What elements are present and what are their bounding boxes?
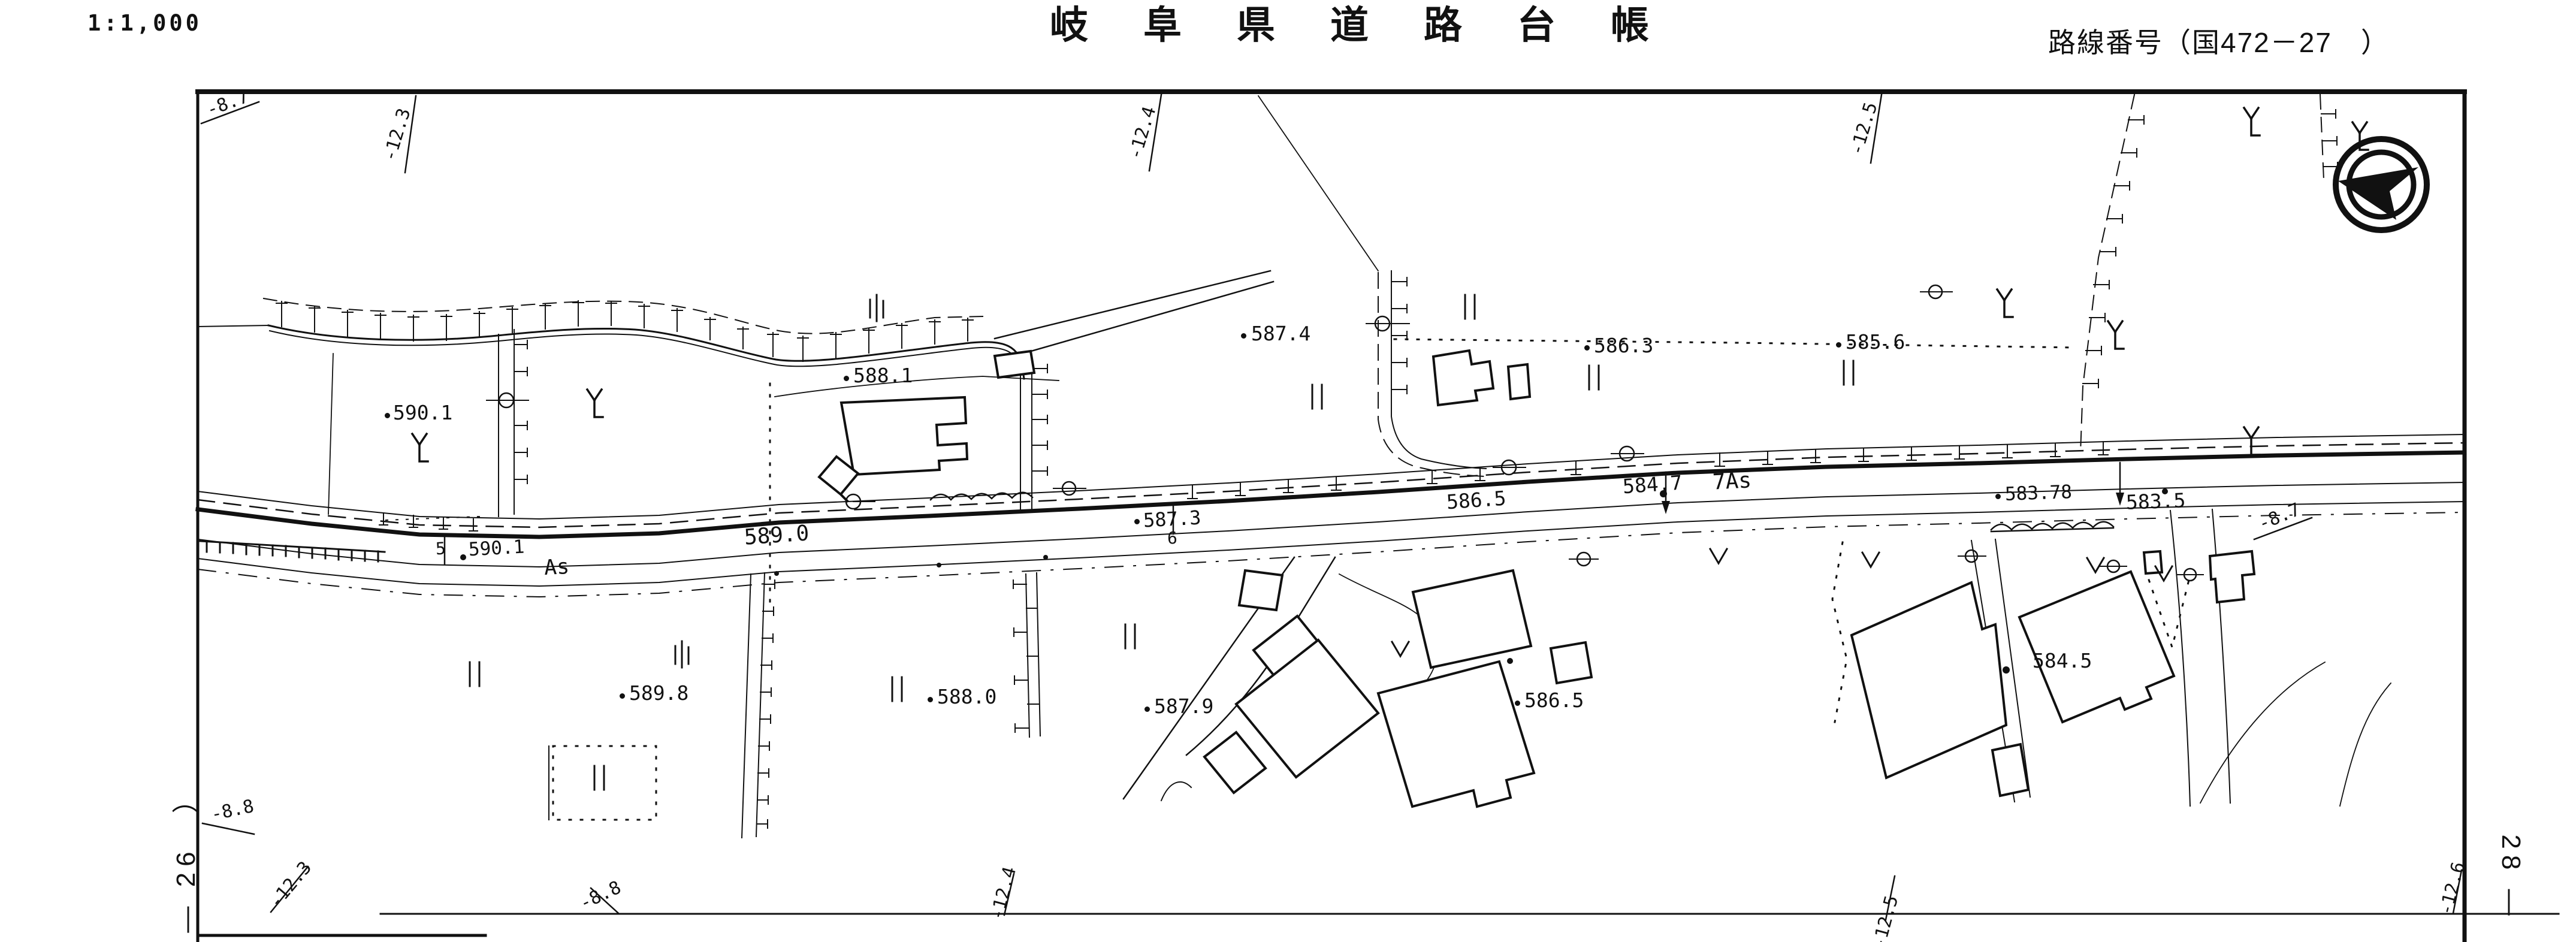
road-ledger-sheet: 1:1,000 岐阜県道路台帳 路線番号（国472－27 ） ― 26 ） 28… — [0, 0, 2576, 942]
lane-lower-left — [742, 573, 775, 838]
utility-pole-icon — [846, 446, 2203, 581]
spot-height-586-5: 586.5 — [1524, 690, 1584, 710]
spot-height-589-8: 589.8 — [629, 683, 688, 703]
building-large-center — [1378, 662, 1534, 807]
road-elev-587-3: 587.3 — [1143, 508, 1201, 530]
spot-height-marker — [1584, 345, 1590, 351]
spot-height-587-4: 587.4 — [1251, 324, 1310, 343]
building-right-small — [1992, 744, 2028, 796]
spot-height-marker — [1241, 333, 1246, 339]
building-tiny-right — [1551, 642, 1591, 683]
road-elev-583-78: 583.78 — [2004, 483, 2072, 504]
embankment-hachures — [276, 301, 973, 361]
retaining-scallops-1 — [931, 493, 1032, 500]
spot-height-585-6: 585.6 — [1846, 332, 1905, 352]
spot-height-588-1: 588.1 — [853, 366, 913, 385]
lane-left — [386, 330, 529, 520]
station-6: 6 — [1167, 530, 1177, 547]
building-cluster-c — [1204, 732, 1266, 793]
road-elev-584-7: 584.7 — [1622, 473, 1683, 497]
road-elev-583-5: 583.5 — [2125, 490, 2185, 512]
spot-height-marker — [1144, 707, 1150, 712]
spot-height-marker — [1134, 519, 1140, 524]
road-elev-589-0: 589.0 — [744, 523, 810, 548]
diagonal-upper-road — [995, 271, 1273, 355]
spot-height-marker — [1515, 701, 1520, 706]
main-road — [198, 434, 2465, 597]
building-small-3 — [1508, 364, 1530, 399]
spot-height-584-5: 584.5 — [2033, 651, 2092, 671]
spot-height-marker — [385, 413, 390, 418]
spot-height-marker — [1836, 342, 1841, 348]
spot-height-586-3: 586.3 — [1594, 336, 1653, 355]
building-small-2 — [1433, 351, 1493, 405]
building-right-east — [2019, 572, 2174, 722]
lane-center — [1013, 360, 1086, 737]
building-small-1 — [995, 351, 1034, 378]
building-frame-small — [2210, 551, 2254, 602]
mulberry-field-icon — [412, 108, 2368, 461]
station-5: 5 — [435, 541, 446, 558]
pavement-as: As — [543, 557, 570, 579]
map-frame — [198, 92, 2559, 942]
road-elev-590-1: 590.1 — [468, 538, 525, 560]
building-mid-right — [1413, 570, 1531, 668]
building-small-4 — [1239, 570, 1282, 610]
roadside-hachures — [379, 442, 2108, 531]
lane-topright-short — [2320, 95, 2338, 180]
building-main-house — [841, 397, 967, 475]
north-arrow-icon — [2336, 139, 2427, 230]
spot-height-590-1: 590.1 — [393, 403, 452, 422]
spot-height-588-0: 588.0 — [937, 687, 996, 707]
retaining-scallops-2 — [1991, 522, 2113, 532]
spot-height-587-9: 587.9 — [1154, 696, 1213, 716]
spot-height-marker — [620, 693, 625, 699]
road-elev-586-5: 586.5 — [1446, 488, 1506, 512]
building-frame-tiny — [2144, 551, 2162, 573]
spot-height-marker — [928, 697, 933, 702]
station-arrow-8 — [2116, 463, 2124, 506]
spot-height-marker — [1995, 494, 2001, 499]
lane-mid — [1258, 96, 1486, 476]
spot-height-marker — [844, 376, 849, 381]
lane-right-slant — [1920, 95, 2144, 453]
station-7-as: 7As — [1712, 470, 1752, 493]
